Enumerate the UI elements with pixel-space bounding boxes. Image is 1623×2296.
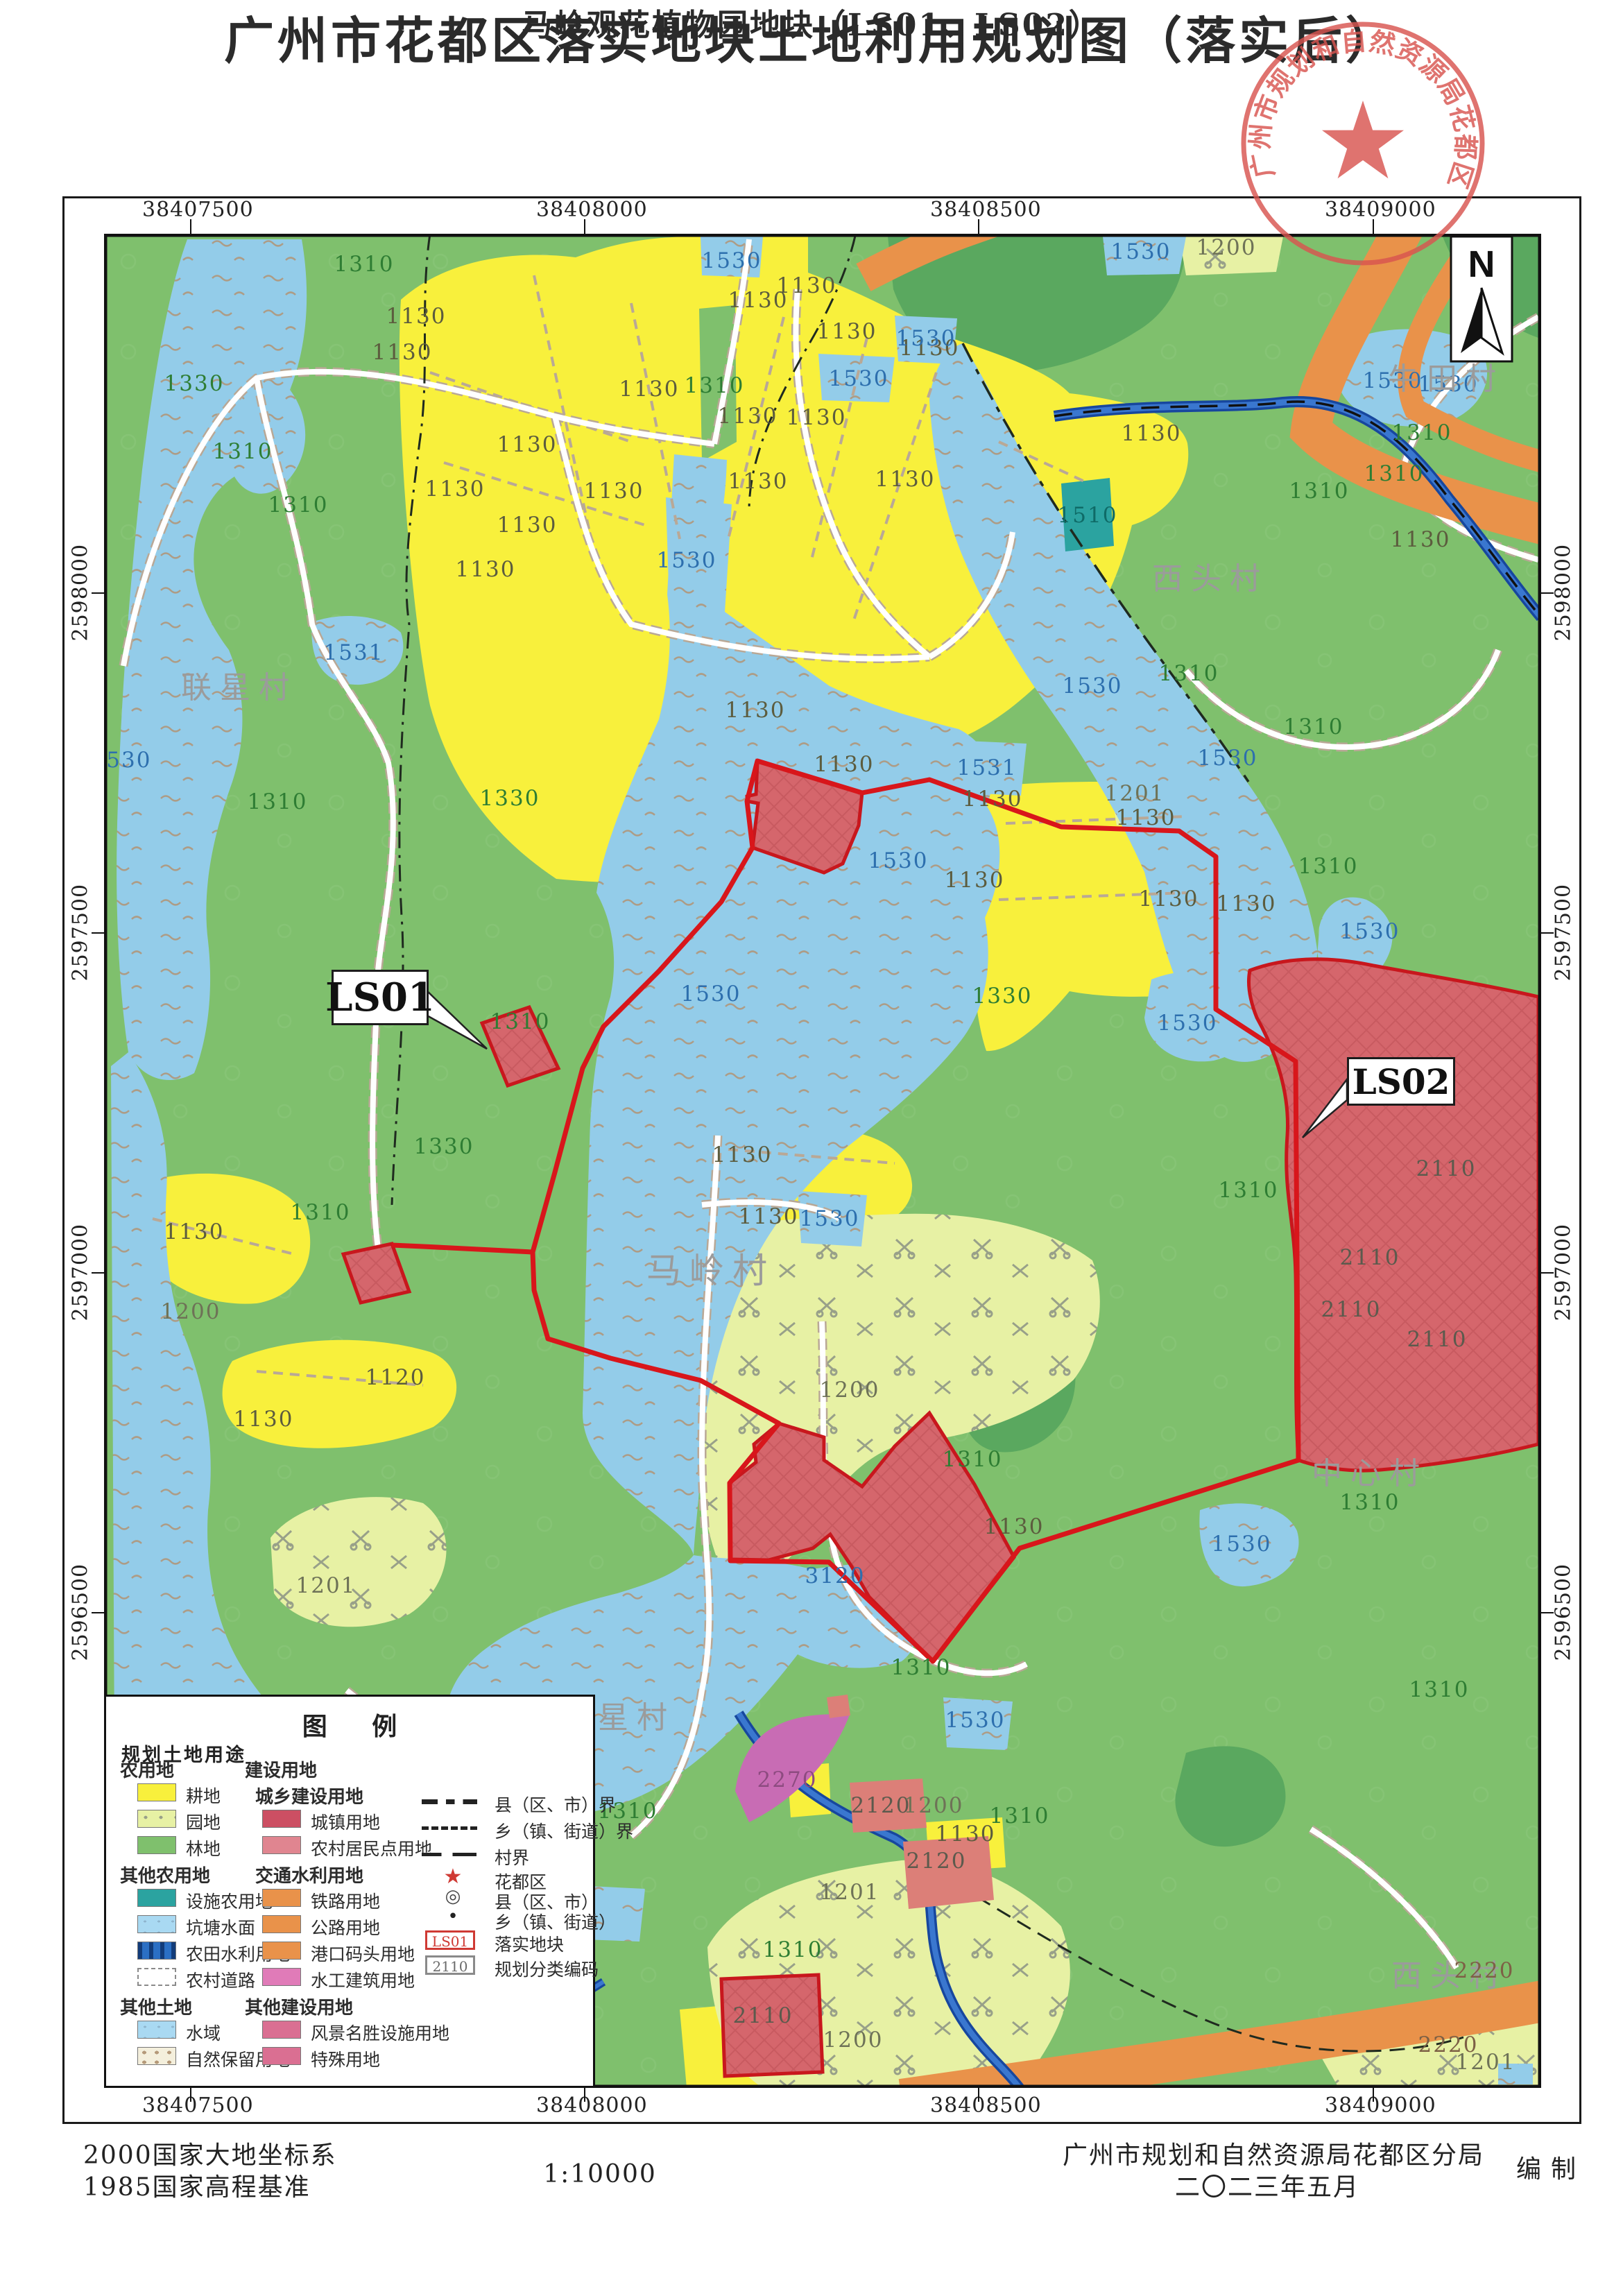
landuse-code-label: 1130 — [372, 340, 433, 365]
legend-swatch-forest — [137, 1836, 176, 1854]
landuse-code-label: 1310 — [1284, 714, 1344, 739]
landuse-code-label: 1200 — [820, 1378, 880, 1403]
village-name-label: 中心村 — [1312, 1456, 1428, 1491]
landuse-code-label: 1530 — [702, 248, 762, 273]
landuse-code-label: 1330 — [480, 786, 540, 811]
legend-label-园地: 园地 — [186, 1809, 221, 1834]
axis-label-top: 38407500 — [142, 198, 239, 222]
landuse-code-label: 1130 — [963, 787, 1023, 812]
landuse-code-label: 1200 — [161, 1299, 221, 1324]
landuse-code-label: 1130 — [718, 404, 778, 429]
legend-label-港口码头用地: 港口码头用地 — [311, 1941, 415, 1966]
legend-swatch-water — [137, 2021, 176, 2039]
landuse-code-label: 1130 — [712, 1142, 773, 1167]
axis-tick — [92, 932, 104, 934]
legend-swatch-villageland — [262, 1836, 301, 1854]
landuse-code-label: 1310 — [1340, 1490, 1400, 1515]
legend-label-农村道路: 农村道路 — [186, 1967, 255, 1992]
axis-tick — [1541, 1272, 1554, 1274]
landuse-code-label: 1530 — [896, 326, 956, 351]
landuse-code-label: 1130 — [619, 377, 680, 402]
axis-label-right: 2598000 — [1552, 545, 1576, 642]
legend-swatch-facility — [137, 1889, 176, 1907]
landuse-code-label: 1530 — [945, 1708, 1006, 1733]
landuse-code-label: 1310 — [1289, 479, 1350, 504]
landuse-code-label: 1130 — [164, 1219, 225, 1244]
axis-tick — [92, 1612, 104, 1613]
village-name-label: 联星村 — [181, 670, 298, 705]
landuse-code-label: 1130 — [814, 752, 875, 777]
legend-label-水工建筑用地: 水工建筑用地 — [311, 1967, 415, 1992]
legend-label-设施农用地: 设施农用地 — [186, 1888, 273, 1913]
legend-label-坑塘水面: 坑塘水面 — [186, 1914, 255, 1939]
landuse-code-label: 2120 — [851, 1793, 911, 1818]
axis-label-top: 38408000 — [536, 198, 633, 222]
landuse-code-label: 1130 — [725, 698, 786, 723]
axis-label-right: 2597000 — [1552, 1224, 1576, 1321]
legend-label-特殊用地: 特殊用地 — [311, 2046, 380, 2071]
village-name-label: 牛田村 — [1388, 361, 1504, 397]
landuse-code-label: 1310 — [268, 492, 329, 517]
landuse-code-label: 1130 — [584, 479, 644, 504]
landuse-code-label: 1330 — [414, 1134, 474, 1159]
landuse-code-label: 2110 — [1407, 1327, 1468, 1352]
village-name-label: 马岭村 — [646, 1251, 775, 1291]
axis-label-left: 2597000 — [69, 1224, 93, 1321]
axis-label-left: 2598000 — [69, 545, 93, 642]
landuse-code-label: 1130 — [1116, 805, 1176, 830]
legend-swatch-ruralroad — [137, 1968, 176, 1986]
legend-swatch-pond — [137, 1915, 176, 1933]
landuse-code-label: 3120 — [805, 1563, 866, 1588]
landuse-code-label: 1201 — [1456, 2050, 1516, 2075]
parcel-callout-ls01[interactable]: LS01 — [332, 970, 429, 1025]
landuse-code-label: 1200 — [904, 1793, 964, 1818]
landuse-code-label: 1310 — [213, 439, 273, 464]
landuse-code-label: 1310 — [891, 1655, 952, 1680]
landuse-code-label: 1130 — [936, 1822, 996, 1847]
legend-label-风景名胜设施用地: 风景名胜设施用地 — [311, 2020, 449, 2045]
credit-label: 编制 — [1516, 2149, 1586, 2185]
landuse-code-label: 1530 — [829, 366, 889, 391]
legend: 图 例 规划土地用途 农用地耕地园地林地其他农用地设施农用地坑塘水面农田水利用地… — [104, 1695, 595, 2088]
legend-symbol-town-line — [422, 1826, 477, 1851]
landuse-code-label: 1130 — [234, 1407, 294, 1432]
legend-label-落实地块: 落实地块 — [495, 1931, 564, 1956]
landuse-code-label: 1130 — [739, 1204, 799, 1229]
landuse-code-label: 1330 — [972, 984, 1033, 1009]
landuse-code-label: 2270 — [757, 1767, 818, 1792]
landuse-code-label: 1130 — [386, 304, 447, 329]
landuse-code-label: 1130 — [497, 513, 558, 538]
landuse-code-label: 1310 — [248, 789, 308, 814]
legend-label-公路用地: 公路用地 — [311, 1914, 380, 1939]
legend-swatch-irrigation — [137, 1942, 176, 1960]
landuse-code-label: 1530 — [1111, 239, 1171, 264]
publish-date: 二〇二三年五月 — [971, 2167, 1359, 2203]
landuse-code-label: 1130 — [456, 557, 516, 582]
legend-swatch-orchard — [137, 1810, 176, 1828]
landuse-code-label: 1130 — [817, 319, 877, 344]
landuse-code-label: 1530 — [681, 982, 741, 1006]
landuse-code-label: 1130 — [875, 467, 936, 492]
map-sheet: 广州市花都区落实地块土地利用规划图（落实后） 马岭观花植物园地块（LS01、LS… — [0, 0, 1623, 2296]
axis-tick — [1541, 1612, 1554, 1613]
landuse-code-label: 1310 — [334, 252, 395, 277]
parcel-callout-ls02[interactable]: LS02 — [1347, 1057, 1455, 1106]
axis-tick — [584, 2088, 585, 2102]
landuse-code-label: 1530 — [1212, 1532, 1272, 1557]
legend-label-铁路用地: 铁路用地 — [311, 1888, 380, 1913]
landuse-code-label: 1130 — [1217, 891, 1277, 916]
official-seal-stamp: 广州市规划和自然资源局花都区分局 — [1228, 8, 1498, 279]
landuse-code-label: 1530 — [1340, 919, 1400, 944]
map-scale: 1:10000 — [479, 2160, 721, 2188]
landuse-code-label: 1130 — [787, 405, 847, 430]
landuse-code-label: 1530 — [1063, 674, 1123, 699]
landuse-code-label: 1130 — [425, 477, 486, 502]
landuse-code-label: 1310 — [1219, 1178, 1279, 1203]
legend-swatch-highway — [262, 1915, 301, 1933]
landuse-code-label: 1130 — [1139, 886, 1199, 911]
landuse-code-label: 1130 — [984, 1514, 1045, 1539]
landuse-code-label: 1200 — [823, 2028, 884, 2053]
legend-section-城乡建设用地: 城乡建设用地 — [255, 1783, 363, 1808]
landuse-code-label: 2220 — [1454, 1958, 1515, 1983]
legend-label-乡（镇、街道）界: 乡（镇、街道）界 — [495, 1818, 633, 1843]
landuse-code-label: 1130 — [728, 469, 789, 494]
axis-label-left: 2596500 — [69, 1564, 93, 1661]
datum-line-1: 2000国家大地坐标系 — [83, 2135, 337, 2171]
landuse-code-label: 1310 — [291, 1200, 351, 1225]
landuse-code-label: 2110 — [733, 2003, 793, 2028]
legend-section-建设用地: 建设用地 — [245, 1756, 317, 1782]
legend-label-村界: 村界 — [495, 1844, 529, 1869]
landuse-code-label: 1530 — [868, 848, 929, 873]
axis-tick — [1541, 932, 1554, 934]
landuse-code-label: 1310 — [1298, 854, 1359, 879]
legend-section-农用地: 农用地 — [120, 1756, 174, 1782]
datum-line-2: 1985国家高程基准 — [83, 2167, 311, 2203]
legend-symbol-double-circle: ◎ — [422, 1886, 484, 1907]
legend-swatch-hydraulic — [262, 1968, 301, 1986]
axis-tick — [92, 592, 104, 594]
legend-label-乡（镇、街道）: 乡（镇、街道） — [495, 1909, 616, 1934]
legend-label-耕地: 耕地 — [186, 1783, 221, 1808]
landuse-code-label: 1310 — [990, 1804, 1050, 1828]
landuse-code-label: 1201 — [820, 1880, 880, 1905]
landuse-code-label: 1330 — [164, 371, 225, 396]
landuse-code-label: 1201 — [1105, 781, 1165, 806]
legend-symbol-county-line — [422, 1799, 477, 1825]
landuse-code-label: 2110 — [1340, 1245, 1400, 1270]
landuse-code-label: 2120 — [907, 1849, 967, 1874]
landuse-code-label: 1310 — [763, 1937, 823, 1962]
landuse-code-label: 1530 — [657, 548, 717, 573]
legend-swatch-scenic — [262, 2021, 301, 2039]
landuse-code-label: 1310 — [1159, 661, 1219, 686]
village-name-label: 西头村 — [1152, 561, 1269, 597]
axis-label-top: 38408500 — [930, 198, 1027, 222]
legend-label-农村居民点用地: 农村居民点用地 — [311, 1835, 432, 1860]
landuse-code-label: 1130 — [945, 868, 1005, 893]
legend-swatch-port — [262, 1942, 301, 1960]
landuse-code-label: 1310 — [490, 1009, 551, 1034]
axis-tick — [1541, 592, 1554, 594]
landuse-code-label: 1310 — [943, 1447, 1003, 1472]
axis-tick — [92, 1272, 104, 1274]
legend-swatch-crop — [137, 1783, 176, 1801]
landuse-code-label: 1310 — [1364, 461, 1425, 486]
landuse-code-label: 2110 — [1416, 1156, 1477, 1181]
landuse-code-label: 1130 — [497, 432, 558, 457]
legend-section-交通水利用地: 交通水利用地 — [255, 1862, 363, 1887]
axis-tick — [190, 219, 191, 234]
legend-symbol-gray-box: 2110 — [425, 1955, 475, 1975]
legend-title: 图 例 — [106, 1706, 593, 1742]
legend-label-县（区、市）界: 县（区、市）界 — [495, 1792, 616, 1817]
legend-swatch-natural — [137, 2047, 176, 2065]
axis-tick — [190, 2088, 191, 2102]
legend-symbol-dot: • — [422, 1906, 484, 1927]
landuse-code-label: 1130 — [1391, 527, 1451, 552]
legend-section-其他土地: 其他土地 — [120, 1994, 192, 2019]
legend-label-城镇用地: 城镇用地 — [311, 1809, 380, 1834]
landuse-code-label: 2110 — [1321, 1297, 1382, 1322]
legend-label-规划分类编码: 规划分类编码 — [495, 1956, 599, 1981]
publisher: 广州市规划和自然资源局花都区分局 — [971, 2135, 1484, 2171]
landuse-code-label: 1531 — [957, 755, 1017, 780]
landuse-code-label: 1310 — [1409, 1677, 1470, 1702]
axis-tick — [978, 2088, 979, 2102]
landuse-code-label: 1310 — [1392, 420, 1452, 445]
landuse-code-label: 1510 — [1058, 503, 1118, 528]
landuse-code-label: 1310 — [685, 373, 745, 398]
axis-label-right: 2596500 — [1552, 1564, 1576, 1661]
landuse-code-label: 1531 — [324, 640, 384, 665]
legend-label-水域: 水域 — [186, 2020, 221, 2045]
landuse-code-label: 1120 — [366, 1365, 426, 1390]
legend-section-其他建设用地: 其他建设用地 — [245, 1994, 353, 2019]
legend-symbol-star: ★ — [422, 1865, 484, 1885]
landuse-code-label: 1530 — [104, 748, 151, 773]
legend-symbol-red-box: LS01 — [425, 1930, 475, 1950]
legend-swatch-special — [262, 2047, 301, 2065]
landuse-code-label: 1130 — [1122, 421, 1182, 446]
landuse-code-label: 1530 — [1198, 746, 1258, 771]
seal-star-icon — [1322, 101, 1404, 178]
legend-swatch-rail — [262, 1889, 301, 1907]
axis-tick — [584, 219, 585, 234]
legend-section-其他农用地: 其他农用地 — [120, 1862, 210, 1887]
landuse-code-label: 1130 — [728, 288, 789, 313]
axis-label-right: 2597500 — [1552, 884, 1576, 982]
landuse-code-label: 1530 — [1158, 1011, 1218, 1036]
axis-tick — [1373, 2088, 1374, 2102]
axis-label-left: 2597500 — [69, 884, 93, 982]
landuse-code-label: 1201 — [296, 1573, 357, 1598]
landuse-code-label: 1530 — [800, 1206, 860, 1231]
legend-label-林地: 林地 — [186, 1835, 221, 1860]
legend-swatch-town — [262, 1810, 301, 1828]
axis-tick — [978, 219, 979, 234]
